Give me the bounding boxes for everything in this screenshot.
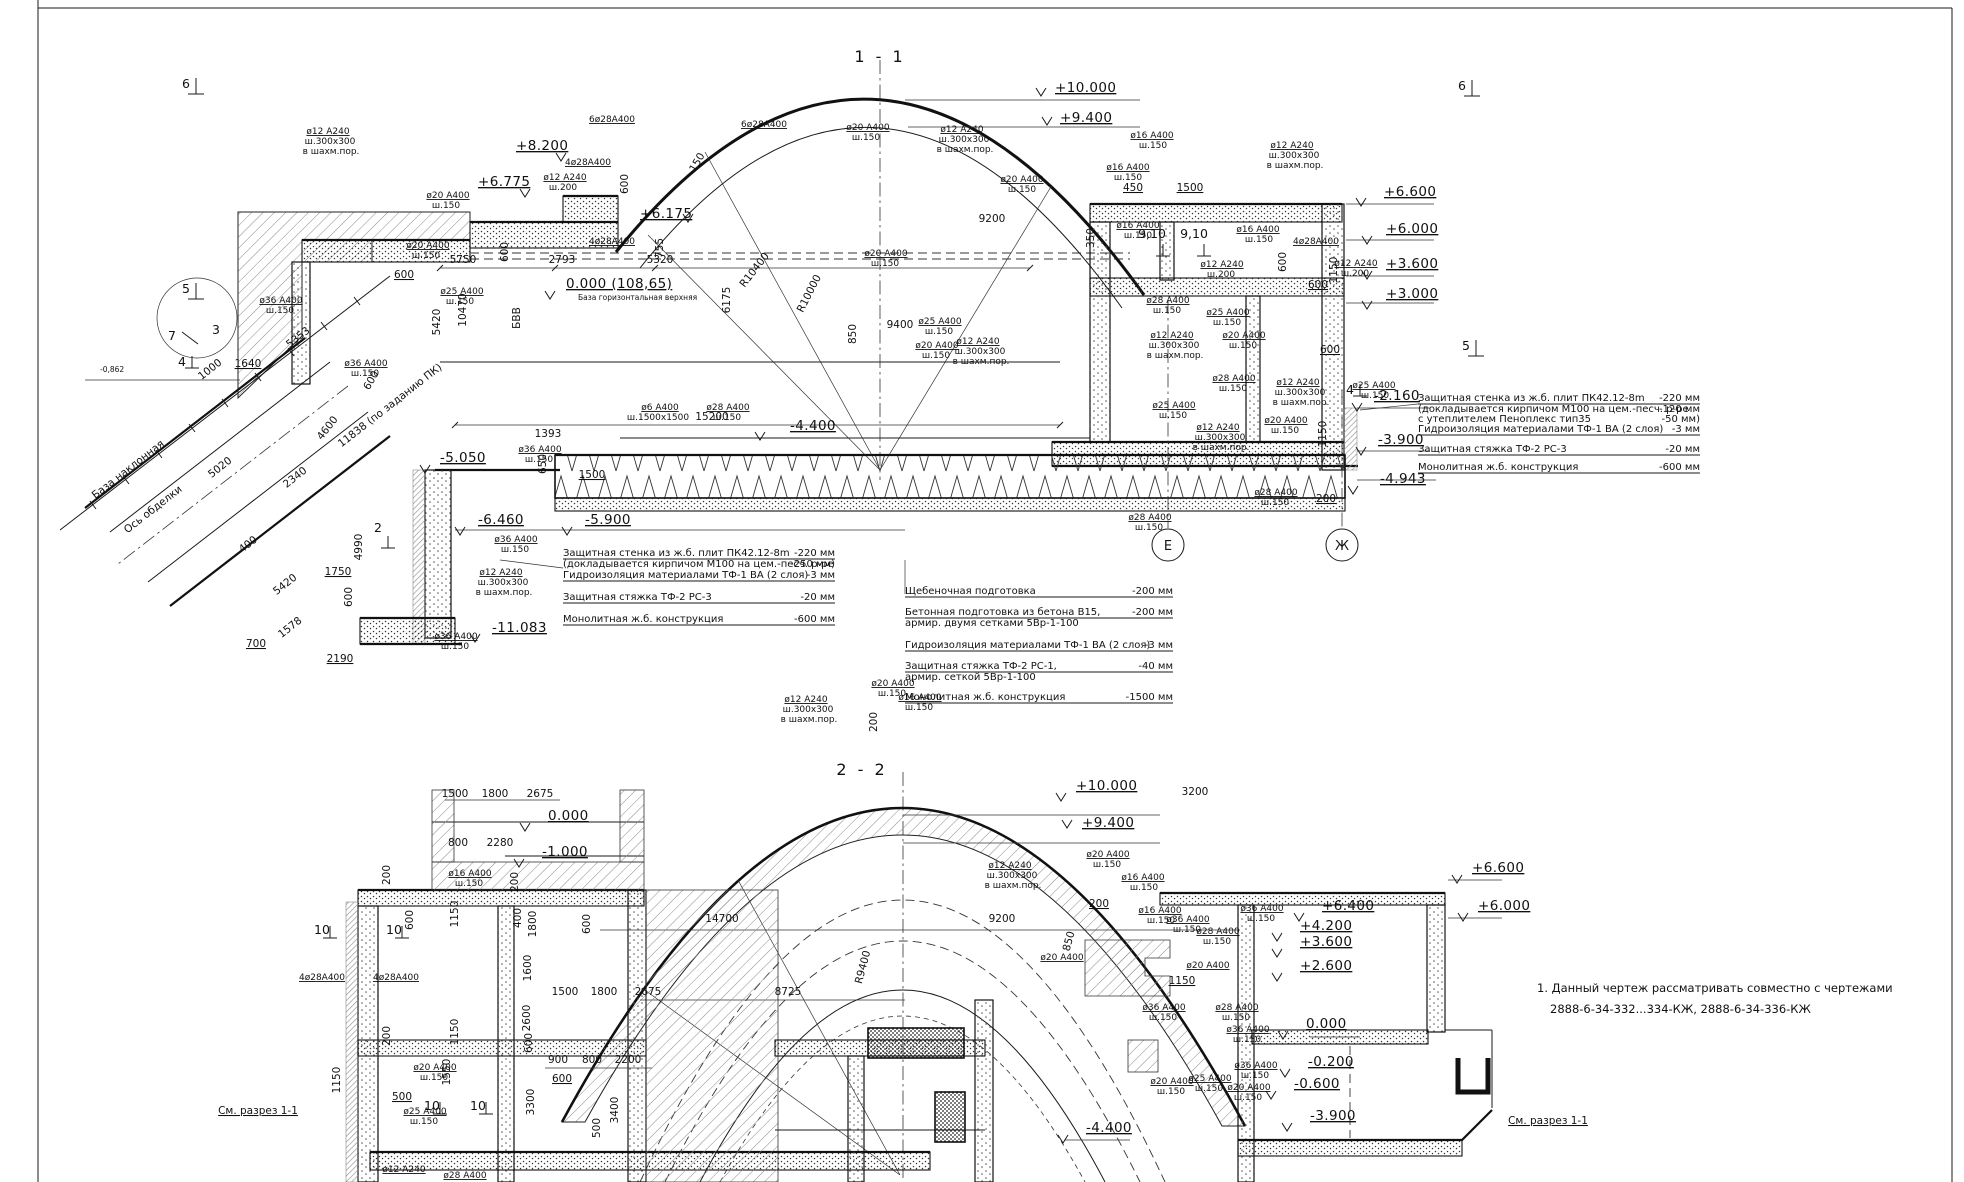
- spec-value: -3 мм: [1145, 640, 1173, 651]
- drawing-label: ø20 А400: [915, 341, 958, 351]
- drawing-label: ш.150: [1159, 411, 1188, 421]
- drawing-label: ø28 А400: [706, 403, 749, 413]
- spec-value: -20 мм: [800, 592, 835, 603]
- drawing-label: 600: [619, 174, 631, 194]
- spec-value: -3 мм: [1672, 424, 1700, 435]
- drawing-label: 1578: [276, 615, 304, 641]
- drawing-label: 1500: [579, 469, 606, 481]
- drawing-label: ш.300x300: [305, 137, 356, 147]
- drawing-label: R10400: [737, 250, 772, 289]
- drawing-label: 600: [552, 1073, 572, 1085]
- spec-block-left: Защитная стенка из ж.б. плит ПК42.12-8m-…: [563, 548, 835, 625]
- drawing-label: -5.050: [440, 450, 486, 466]
- drawing-label: в шахм.пор.: [1273, 398, 1330, 408]
- drawing-canvas: Е Ж 1 - 1 +10.000+9.400+8.200+6.775+6.17…: [0, 0, 1964, 1182]
- spec-block-center: Щебеночная подготовка-200 ммБетонная под…: [905, 586, 1173, 703]
- drawing-label: ш.150: [1271, 426, 1300, 436]
- drawing-label: ш.150: [1093, 860, 1122, 870]
- drawing-label: ш.150: [1234, 1093, 1263, 1103]
- drawing-label: 5750: [450, 254, 477, 266]
- drawing-label: ш.150: [925, 327, 954, 337]
- drawing-label: 4: [178, 354, 186, 369]
- drawing-label: 2190: [327, 653, 354, 665]
- drawing-label: 10: [386, 922, 402, 937]
- drawing-label: ш.150: [1361, 391, 1390, 401]
- drawing-label: ø25 А400: [1352, 381, 1395, 391]
- drawing-label: 1500: [442, 788, 469, 800]
- drawing-label: 9,10: [1180, 226, 1208, 241]
- drawing-label: ш.150: [1261, 498, 1290, 508]
- drawing-label: ø20 А400: [846, 123, 889, 133]
- drawing-label: ш.150: [1195, 1084, 1224, 1094]
- drawing-label: ø12 А240: [1276, 378, 1319, 388]
- drawing-label: 9200: [989, 913, 1016, 925]
- spec-value: -3 мм: [807, 570, 835, 581]
- drawing-label: ø12 А240: [1334, 259, 1377, 269]
- drawing-label: ш.150: [441, 642, 470, 652]
- drawing-label: 5: [182, 281, 190, 296]
- drawing-label: ø12 А240: [956, 337, 999, 347]
- drawing-label: ø36 А400: [1240, 904, 1283, 914]
- drawing-label: ш.300x300: [1269, 151, 1320, 161]
- drawing-label: ø12 А240: [988, 861, 1031, 871]
- drawing-label: 600: [394, 269, 414, 281]
- drawing-label: ø20 А400: [1186, 961, 1229, 971]
- spec-text: Гидроизоляция материалами ТФ-1 ВА (2 сло…: [1418, 424, 1663, 435]
- drawing-label: +6.000: [1478, 898, 1530, 914]
- spec-text: Монолитная ж.б. конструкция: [1418, 462, 1578, 473]
- drawing-label: 200: [381, 865, 393, 885]
- drawing-label: ш.150: [1124, 231, 1153, 241]
- drawing-label: -0,862: [100, 365, 124, 374]
- drawing-label: ш.200: [1341, 269, 1370, 279]
- drawing-label: ø36 А400: [259, 296, 302, 306]
- drawing-label: +4.200: [1300, 918, 1352, 934]
- drawing-label: 600: [404, 910, 416, 930]
- drawing-label: в шахм.пор.: [781, 715, 838, 725]
- drawing-label: +10.000: [1076, 778, 1137, 794]
- drawing-label: ш.200: [1207, 270, 1236, 280]
- drawing-label: 1600: [522, 955, 534, 982]
- drawing-label: БВВ: [511, 307, 523, 329]
- drawing-label: ш.300x300: [1149, 341, 1200, 351]
- drawing-label: 600: [1277, 252, 1289, 272]
- drawing-label: +9.400: [1060, 110, 1112, 126]
- drawing-label: 3400: [609, 1097, 621, 1124]
- drawing-label: +3.600: [1300, 934, 1352, 950]
- drawing-label: 1150: [1169, 975, 1196, 987]
- drawing-label: 1000: [196, 357, 224, 383]
- drawing-label: ш.150: [1153, 306, 1182, 316]
- drawing-label: ш.150: [266, 306, 295, 316]
- drawing-label: ø20 А400: [1222, 331, 1265, 341]
- abutment-hatch: [646, 890, 778, 1182]
- drawing-label: ш.1500x1500: [627, 413, 690, 423]
- drawing-label: ø12 А240: [1270, 141, 1313, 151]
- drawing-label: 600: [343, 587, 355, 607]
- drawing-label: 200: [1089, 898, 1109, 910]
- drawing-label: ш.150: [420, 1073, 449, 1083]
- drawing-label: ш.150: [1203, 937, 1232, 947]
- drawing-label: ø36 А400: [1226, 1025, 1269, 1035]
- spec-value: -200 мм: [1132, 586, 1173, 597]
- drawing-label: R10000: [795, 273, 824, 315]
- spec-text-cont: армир. сеткой 5Вр-1-100: [905, 672, 1036, 683]
- drawing-label: ø20 А400: [406, 241, 449, 251]
- drawing-label: в шахм.пор.: [303, 147, 360, 157]
- drawing-label: -1.000: [542, 844, 588, 860]
- drawing-label: 2675: [527, 788, 554, 800]
- drawing-label: 5420: [431, 309, 443, 336]
- spec-block-right: Защитная стенка из ж.б. плит ПК42.12-8m-…: [1418, 393, 1700, 473]
- drawing-label: 1393: [535, 428, 562, 440]
- drawing-label: ш.150: [351, 369, 380, 379]
- drawing-label: ø12 А240: [306, 127, 349, 137]
- drawing-label: ø16 А400: [1236, 225, 1279, 235]
- spec-text: Защитная стенка из ж.б. плит ПК42.12-8m: [1418, 393, 1645, 404]
- drawing-label: 200: [868, 712, 880, 732]
- drawing-label: ш.150: [412, 251, 441, 261]
- drawing-label: 900: [548, 1054, 568, 1066]
- drawing-label: 600: [1308, 279, 1328, 291]
- drawing-label: 6175: [721, 287, 733, 314]
- drawing-label: ш.150: [852, 133, 881, 143]
- drawing-label: 600: [1320, 344, 1340, 356]
- drawing-label: 2675: [635, 986, 662, 998]
- drawing-label: ø12 А240: [479, 568, 522, 578]
- drawing-label: ø25 А400: [1206, 308, 1249, 318]
- drawing-label: +6.775: [478, 174, 530, 190]
- drawing-label: -0.600: [1294, 1076, 1340, 1092]
- drawing-label: -6.460: [478, 512, 524, 528]
- drawing-label: ø28 А400: [1196, 927, 1239, 937]
- drawing-label: ø12 А240: [1150, 331, 1193, 341]
- drawing-label: 800: [582, 1054, 602, 1066]
- drawing-label: 6: [1458, 78, 1466, 93]
- spec-text: Защитная стяжка ТФ-2 РС-1,: [905, 661, 1057, 672]
- drawing-label: ш.300x300: [955, 347, 1006, 357]
- drawing-label: 9200: [979, 213, 1006, 225]
- drawing-label: ш.150: [1247, 914, 1276, 924]
- drawing-label: -0.200: [1308, 1054, 1354, 1070]
- drawing-label: в шахм.пор.: [1193, 443, 1250, 453]
- drawing-label: 10: [314, 922, 330, 937]
- axis-label-zh: Ж: [1335, 539, 1349, 554]
- drawing-label: 500: [591, 1118, 603, 1138]
- drawing-label: ø20 А400: [413, 1063, 456, 1073]
- drawing-label: 1500: [1177, 182, 1204, 194]
- section2-title: 2 - 2: [836, 760, 887, 779]
- drawing-label: 5420: [271, 572, 299, 598]
- drawing-label: 1640: [235, 358, 262, 370]
- drawing-label: -11.083: [492, 620, 547, 636]
- drawing-label: 200: [1316, 493, 1336, 505]
- drawing-label: Ось обделки: [122, 483, 185, 536]
- drawing-label: 4ø28А400: [299, 973, 345, 983]
- drawing-label: 1150: [449, 901, 461, 928]
- drawing-label: ø20 А400: [1264, 416, 1307, 426]
- spec-value: -1500 мм: [1126, 692, 1173, 703]
- note-line-1: 1. Данный чертеж рассматривать совместно…: [1537, 981, 1893, 995]
- spec-text: Щебеночная подготовка: [905, 586, 1036, 597]
- drawing-sheet: Е Ж 1 - 1 +10.000+9.400+8.200+6.775+6.17…: [0, 0, 1964, 1182]
- drawing-label: 600: [499, 242, 511, 262]
- drawing-label: ø28 А400: [1212, 374, 1255, 384]
- drawing-label: ш.300x300: [1275, 388, 1326, 398]
- drawing-label: ш.300x300: [939, 135, 990, 145]
- foundation-slab: [555, 455, 1345, 498]
- drawing-label: ш.300x300: [783, 705, 834, 715]
- drawing-label: 1800: [482, 788, 509, 800]
- drawing-label: ø12 А240: [382, 1165, 425, 1175]
- drawing-label: 500: [392, 1091, 412, 1103]
- drawing-label: +3.000: [1386, 286, 1438, 302]
- spec-text: Защитная стенка из ж.б. плит ПК42.12-8m: [563, 548, 790, 559]
- drawing-label: -3.900: [1310, 1108, 1356, 1124]
- spec-text-cont: армир. двумя сетками 5Вр-1-100: [905, 618, 1079, 629]
- drawing-label: ø36 А400: [1166, 915, 1209, 925]
- drawing-label: ø20 А400: [1150, 1077, 1193, 1087]
- drawing-label: ø20 А400: [426, 191, 469, 201]
- drawing-label: 7: [168, 328, 176, 343]
- drawing-label: ш.200: [549, 183, 578, 193]
- drawing-label: 3: [212, 322, 220, 337]
- drawing-label: 4ø28А400: [565, 158, 611, 168]
- drawing-label: 10: [470, 1098, 486, 1113]
- drawing-label: -4.400: [790, 418, 836, 434]
- drawing-label: ø16 А400: [1130, 131, 1173, 141]
- drawing-label: ø36 А400: [434, 632, 477, 642]
- drawing-label: ø36 А400: [344, 359, 387, 369]
- drawing-label: ø6 А400: [641, 403, 679, 413]
- drawing-label: ш.150: [1157, 1087, 1186, 1097]
- drawing-label: 1150: [1317, 421, 1329, 448]
- drawing-label: 600: [523, 1033, 535, 1053]
- drawing-label: 2793: [549, 254, 576, 266]
- drawing-label: ø12 А240: [543, 173, 586, 183]
- drawing-label: в шахм.пор.: [953, 357, 1010, 367]
- drawing-label: ø12 А240: [940, 125, 983, 135]
- drawing-label: ø36 А400: [1234, 1061, 1277, 1071]
- drawing-label: ø36 А400: [1142, 1003, 1185, 1013]
- drawing-label: ш.300x300: [1195, 433, 1246, 443]
- drawing-label: ш.150: [905, 703, 934, 713]
- drawing-label: 850: [1061, 930, 1078, 952]
- drawing-label: +6.175: [640, 206, 692, 222]
- drawing-label: ш.150: [1241, 1071, 1270, 1081]
- drawing-label: ø16 А400: [1116, 221, 1159, 231]
- drawing-label: ø20 А400: [864, 249, 907, 259]
- drawing-label: 2600: [521, 1005, 533, 1032]
- drawing-label: ш.150: [871, 259, 900, 269]
- drawing-label: 6ø28А400: [741, 120, 787, 130]
- drawing-label: в шахм.пор.: [985, 881, 1042, 891]
- spec-text: Монолитная ж.б. конструкция: [563, 614, 723, 625]
- drawing-label: 850: [847, 324, 859, 344]
- drawing-label: 5020: [206, 455, 234, 481]
- drawing-label: 0.000 (108,65): [566, 276, 672, 292]
- drawing-label: 6ø28А400: [589, 115, 635, 125]
- drawing-label: 1150: [449, 1019, 461, 1046]
- drawing-label: ø20 А400: [1227, 1083, 1270, 1093]
- drawing-label: ø28 А400: [1215, 1003, 1258, 1013]
- drawing-label: ø28 А400: [443, 1171, 486, 1181]
- drawing-label: +6.600: [1472, 860, 1524, 876]
- drawing-label: -5.900: [585, 512, 631, 528]
- drawing-label: ø12 А240: [1196, 423, 1239, 433]
- spec-text: Защитная стяжка ТФ-2 РС-3: [1418, 444, 1567, 455]
- drawing-label: 4ø28А400: [1293, 237, 1339, 247]
- drawing-label: 3200: [1182, 786, 1209, 798]
- general-note: 1. Данный чертеж рассматривать совместно…: [1537, 981, 1893, 1016]
- drawing-label: ш.150: [410, 1117, 439, 1127]
- drawing-label: ø25 А400: [918, 317, 961, 327]
- drawing-label: ш.150: [1135, 523, 1164, 533]
- spec-value: -250 мм): [790, 559, 835, 570]
- drawing-label: База горизонтальная верхняя: [578, 293, 697, 302]
- drawing-label: 1800: [527, 911, 539, 938]
- drawing-label: ш.150: [525, 455, 554, 465]
- section-2-2: 2 - 2 +10.000+9.400+6.600+6.000+6.400+4.…: [218, 679, 1588, 1182]
- drawing-label: +6.000: [1386, 221, 1438, 237]
- drawing-label: +10.000: [1055, 80, 1116, 96]
- drawing-label: База наклонная: [90, 438, 167, 502]
- drawing-label: 14700: [705, 913, 738, 925]
- drawing-label: ø16 А400: [1106, 163, 1149, 173]
- spec-value: -200 мм: [1132, 607, 1173, 618]
- spec-text: Защитная стяжка ТФ-2 РС-3: [563, 592, 712, 603]
- drawing-label: 1500: [552, 986, 579, 998]
- drawing-label: 9400: [887, 319, 914, 331]
- drawing-label: ш.150: [1229, 341, 1258, 351]
- drawing-label: 200: [509, 872, 521, 892]
- drawing-label: 2280: [487, 837, 514, 849]
- drawing-label: ø36 А400: [494, 535, 537, 545]
- drawing-label: 0.000: [548, 808, 589, 824]
- drawing-label: ø25 А400: [1152, 401, 1195, 411]
- drawing-label: +6.400: [1322, 898, 1374, 914]
- drawing-label: 2: [374, 520, 382, 535]
- drawing-label: ø12 А240: [1200, 260, 1243, 270]
- spec-value: -600 мм: [1659, 462, 1700, 473]
- drawing-label: 800: [448, 837, 468, 849]
- drawing-label: 600: [581, 914, 593, 934]
- drawing-label: +6.600: [1384, 184, 1436, 200]
- drawing-label: 1150: [331, 1067, 343, 1094]
- drawing-label: См. разрез 1-1: [1508, 1115, 1588, 1127]
- drawing-label: ш.150: [713, 413, 742, 423]
- drawing-label: 6: [182, 76, 190, 91]
- spec-text: Гидроизоляция материалами ТФ-1 ВА (2 сло…: [905, 640, 1150, 651]
- drawing-label: в шахм.пор.: [476, 588, 533, 598]
- drawing-label: ш.300x300: [987, 871, 1038, 881]
- drawing-label: ø20 А400: [1086, 850, 1129, 860]
- spec-value: -20 мм: [1665, 444, 1700, 455]
- spec-text: Гидроизоляция материалами ТФ-1 ВА (2 сло…: [563, 570, 808, 581]
- drawing-label: ш.150: [455, 879, 484, 889]
- drawing-label: ш.150: [432, 201, 461, 211]
- drawing-label: 4ø28А400: [589, 237, 635, 247]
- drawing-label: ø25 А400: [1188, 1074, 1231, 1084]
- drawing-label: R9400: [853, 949, 873, 985]
- drawing-label: 350: [1085, 228, 1097, 248]
- drawing-label: ø25 А400: [403, 1107, 446, 1117]
- drawing-label: +2.600: [1300, 958, 1352, 974]
- drawing-label: 755: [654, 238, 666, 258]
- drawing-label: 8725: [775, 986, 802, 998]
- drawing-label: ø28 А400: [1254, 488, 1297, 498]
- drawing-label: ш.150: [1114, 173, 1143, 183]
- drawing-label: 3300: [525, 1089, 537, 1116]
- drawing-label: в шахм.пор.: [1267, 161, 1324, 171]
- spec-text: Бетонная подготовка из бетона В15,: [905, 607, 1100, 618]
- drawing-label: 4ø28А400: [373, 973, 419, 983]
- drawing-label: ш.150: [1245, 235, 1274, 245]
- drawing-label: ш.150: [1149, 1013, 1178, 1023]
- drawing-label: ш.150: [1139, 141, 1168, 151]
- drawing-label: ш.150: [1008, 185, 1037, 195]
- drawing-label: ш.150: [1222, 1013, 1251, 1023]
- detail-circle: [157, 278, 237, 358]
- drawing-label: +8.200: [516, 138, 568, 154]
- spec-value: -220 мм: [794, 548, 835, 559]
- drawing-label: ш.150: [1219, 384, 1248, 394]
- drawing-label: ш.150: [1233, 1035, 1262, 1045]
- drawing-label: ø16 А400: [448, 869, 491, 879]
- drawing-label: 4600: [315, 414, 341, 442]
- drawing-label: 5: [1462, 338, 1470, 353]
- drawing-label: 700: [246, 638, 266, 650]
- drawing-label: 4990: [353, 534, 365, 561]
- drawing-label: -4.400: [1086, 1120, 1132, 1136]
- drawing-label: ш.150: [501, 545, 530, 555]
- drawing-label: ø20 А400: [1040, 953, 1083, 963]
- drawing-label: ш.300x300: [478, 578, 529, 588]
- drawing-label: ø36 А400: [518, 445, 561, 455]
- drawing-label: 1800: [591, 986, 618, 998]
- spec-value: -600 мм: [794, 614, 835, 625]
- spec-value: -40 мм: [1138, 661, 1173, 672]
- drawing-label: ш.150: [1130, 883, 1159, 893]
- spec-value: -220 мм: [1659, 393, 1700, 404]
- drawing-label: ø20 А400: [1000, 175, 1043, 185]
- drawing-label: ш.150: [922, 351, 951, 361]
- drawing-label: в шахм.пор.: [1147, 351, 1204, 361]
- section1-title: 1 - 1: [854, 47, 905, 66]
- drawing-label: ø28 А400: [1146, 296, 1189, 306]
- note-line-2: 2888-6-34-332...334-КЖ, 2888-6-34-336-КЖ: [1550, 1002, 1811, 1016]
- drawing-label: +9.400: [1082, 815, 1134, 831]
- drawing-label: в шахм.пор.: [937, 145, 994, 155]
- drawing-label: ш.150: [1213, 318, 1242, 328]
- drawing-label: 450: [1123, 182, 1143, 194]
- drawing-label: См. разрез 1-1: [218, 1105, 298, 1117]
- drawing-label: 1750: [325, 566, 352, 578]
- drawing-label: ø25 А400: [440, 287, 483, 297]
- drawing-label: 400: [512, 908, 524, 928]
- drawing-label: ø16 А400: [1121, 873, 1164, 883]
- axis-label-e: Е: [1164, 539, 1172, 554]
- drawing-label: 2200: [615, 1054, 642, 1066]
- drawing-label: 0.000: [1306, 1016, 1347, 1032]
- drawing-label: +3.600: [1386, 256, 1438, 272]
- drawing-label: ø12 А240: [784, 695, 827, 705]
- drawing-label: ø28 А400: [1128, 513, 1171, 523]
- drawing-label: ш.150: [446, 297, 475, 307]
- drawing-label: 200: [381, 1026, 393, 1046]
- spec-text: Монолитная ж.б. конструкция: [905, 692, 1065, 703]
